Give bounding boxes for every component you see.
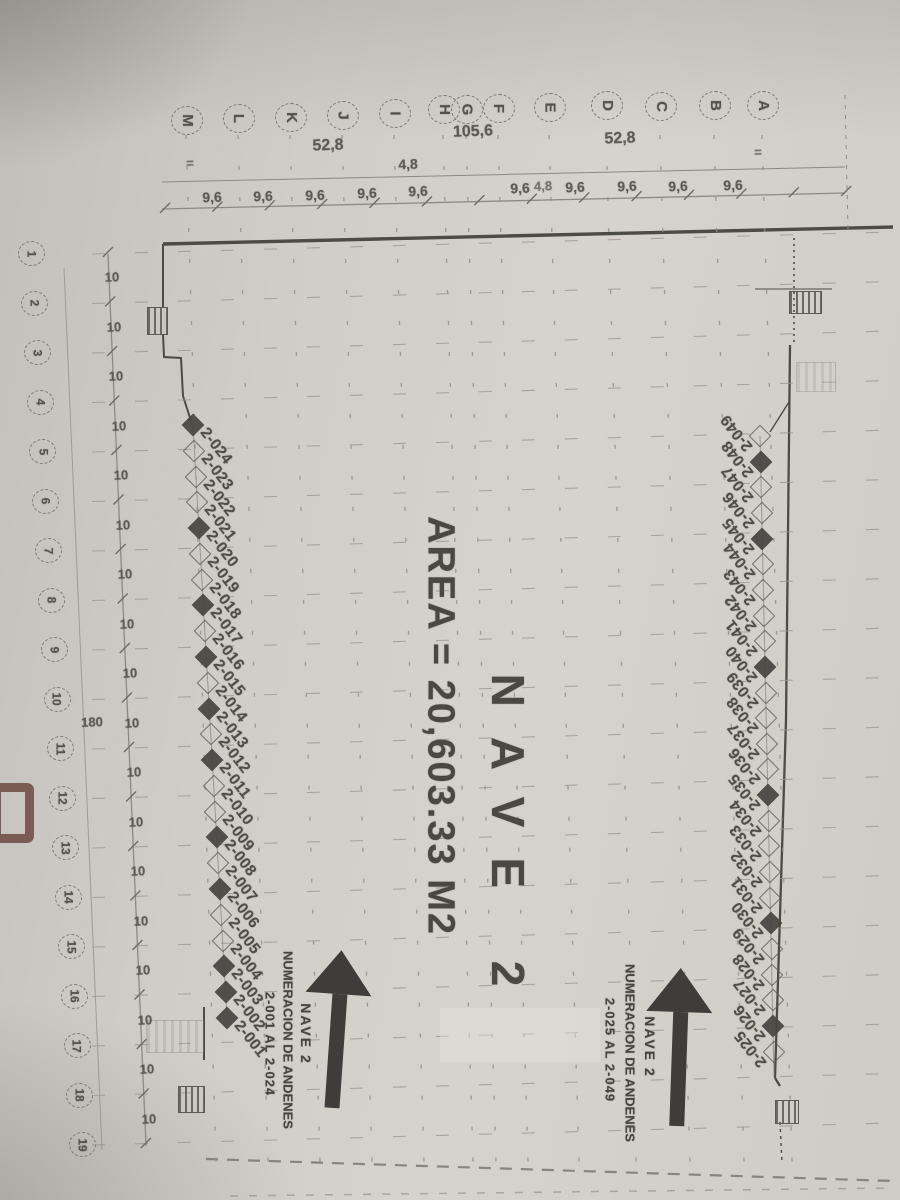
dimension-label: 9,6 [408,183,428,200]
dimension-label: 10 [116,517,131,532]
ramp-hatch [796,362,836,392]
dimension-label: 10 [135,962,150,977]
dimension-label: 9,6 [510,180,530,197]
dimension-label: 9,6 [202,189,222,206]
dimension-label: 10 [120,616,135,631]
grid-row-bubble: 17 [64,1033,91,1058]
dimension-label: 10 [131,863,146,878]
arrow-head [646,967,713,1013]
arrow-head [306,948,375,996]
grid-row-bubble: 7 [35,538,62,563]
plan-sheet: MLKJIHGFEDCBA123456789101112131415161718… [0,0,900,1200]
dimension-label: 10 [122,665,137,680]
grid-row-bubble: 6 [32,489,59,514]
arrow-caption-line: NUMERACION DE ANDENES [281,951,296,1129]
dimension-label: 4,8 [534,178,553,194]
dimension-label: 9,6 [723,177,743,194]
dimension-label: 9,6 [253,188,273,205]
grid-row-bubble: 3 [24,340,51,365]
grid-column-bubble: K [275,103,307,132]
grid-row-bubble: 18 [66,1083,93,1108]
dimension-label: 10 [107,319,122,334]
grid-row-bubble: 15 [58,934,85,959]
dimension-label: 10 [142,1111,157,1126]
dimension-label: 10 [111,418,126,433]
stairs-icon [178,1086,205,1113]
dimension-label: 10 [129,814,144,829]
grid-column-bubble: J [327,101,359,130]
edge-stamp-mark [0,783,34,843]
arrow-caption-line: 2-001 AL 2-024 [263,992,278,1096]
grid-row-bubble: 8 [38,588,65,613]
dimension-label: 9,6 [305,187,325,204]
grid-column-bubble: A [747,91,779,120]
ramp-hatch [146,1020,204,1053]
dimension-label: 9,6 [617,178,637,195]
grid-column-bubble: I [379,99,411,128]
grid-row-bubble: 4 [27,390,54,415]
tick-mark: = [754,144,762,159]
dimension-label: 10 [105,269,120,284]
dimension-label: 9,6 [668,178,688,195]
grid-row-bubble: 1 [18,241,45,266]
dimension-label: 180 [81,714,103,730]
dimension-label: 52,8 [604,129,636,148]
grid-row-bubble: 14 [55,885,82,910]
grid-column-bubble: E [534,93,566,122]
dimension-label: 10 [118,566,133,581]
dimension-label: 10 [109,368,124,383]
grid-column-bubble: L [223,104,255,133]
grid-column-bubble: M [171,106,203,135]
dimension-label: 9,6 [357,185,377,202]
grid-row-bubble: 9 [41,637,68,662]
tick-mark: = [186,155,194,170]
arrow-shaft [669,1012,688,1126]
dimension-label: 10 [140,1061,155,1076]
grid-column-bubble: C [645,92,677,121]
grid-column-bubble: G [451,95,483,124]
dimension-label: 10 [113,467,128,482]
grid-row-bubble: 10 [44,687,71,712]
dimension-label: 10 [124,715,139,730]
grid-column-bubble: D [591,91,623,120]
arrow-caption-line: NAVE 2 [298,1003,314,1065]
stairs-icon [789,291,822,314]
plan-photo: MLKJIHGFEDCBA123456789101112131415161718… [0,0,900,1200]
dimension-label: 10 [133,913,148,928]
stairs-icon [775,1100,799,1124]
arrow-caption-line: NUMERACION DE ANDENES [623,964,638,1142]
dimension-label: 4,8 [398,156,418,173]
dimension-label: 10 [127,764,142,779]
grid-row-bubble: 2 [21,291,48,316]
grid-row-bubble: 16 [61,984,88,1009]
dimension-label: 105,6 [453,122,494,141]
arrow-caption-line: NAVE 2 [642,1016,658,1078]
dimension-label: 10 [138,1012,153,1027]
arrow-shaft [325,994,348,1109]
plan-area-text: AREA = 20,603.33 M2 [419,516,462,936]
grid-row-bubble: 13 [52,835,79,860]
stairs-icon [147,307,168,335]
grid-column-bubble: F [483,94,515,123]
plan-title: NAVE 2 [481,674,535,1017]
dimension-label: 9,6 [565,179,585,196]
grid-column-bubble: B [699,91,731,120]
grid-row-bubble: 11 [47,736,74,761]
grid-row-bubble: 12 [49,786,76,811]
dimension-label: 52,8 [312,136,344,155]
arrow-caption-line: 2-025 AL 2-049 [603,998,618,1102]
